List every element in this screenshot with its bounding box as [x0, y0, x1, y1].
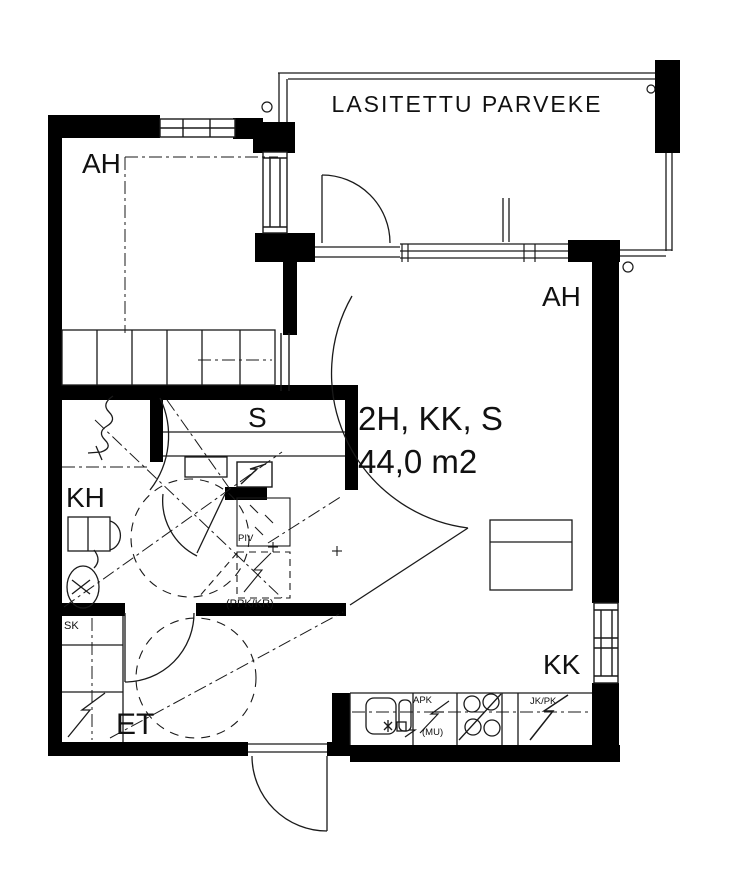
label-piv: PIV: [238, 533, 254, 544]
label-washer-dryer: (PPK/KR): [226, 598, 274, 610]
washbasin: [68, 517, 120, 551]
washer-dryer-area: [198, 498, 342, 598]
apartment-type: 2H, KK, S: [358, 400, 503, 437]
floor-plan-drawing: LASITETTU PARVEKE AH AH 2H, KK, S 44,0 m…: [0, 0, 737, 885]
bedroom-sliding-door: [281, 333, 289, 391]
sauna-benches: [163, 432, 345, 477]
label-fridge-freezer: JK/PK: [530, 696, 557, 707]
kitchen-sink: [366, 698, 415, 737]
shower-icon: [88, 396, 113, 460]
living-table: [490, 520, 572, 590]
floor-plan: LASITETTU PARVEKE AH AH 2H, KK, S 44,0 m…: [0, 0, 737, 885]
room-label-hallway: ET: [116, 708, 154, 741]
room-label-sauna: S: [248, 402, 267, 433]
sauna-heater: [237, 462, 272, 487]
room-label-bathroom: KH: [66, 482, 105, 513]
label-dishwasher-note: (MU): [422, 727, 443, 738]
label-dishwasher: APK: [413, 695, 433, 706]
stove: [459, 694, 501, 740]
bedroom-top-window: [160, 119, 235, 137]
room-label-kitchenette: KK: [543, 649, 581, 680]
label-cleaning-closet: SK: [64, 620, 79, 632]
kitchen-window: [594, 603, 618, 683]
balcony-label: LASITETTU PARVEKE: [332, 91, 603, 117]
bedroom-balcony-window: [263, 152, 287, 233]
room-label-living: AH: [542, 281, 581, 312]
room-label-bedroom: AH: [82, 148, 121, 179]
bedroom-wardrobe: [62, 330, 275, 385]
apartment-area: 44,0 m2: [358, 443, 477, 480]
toilet: [67, 550, 99, 608]
living-balcony-window-band: [315, 244, 568, 262]
